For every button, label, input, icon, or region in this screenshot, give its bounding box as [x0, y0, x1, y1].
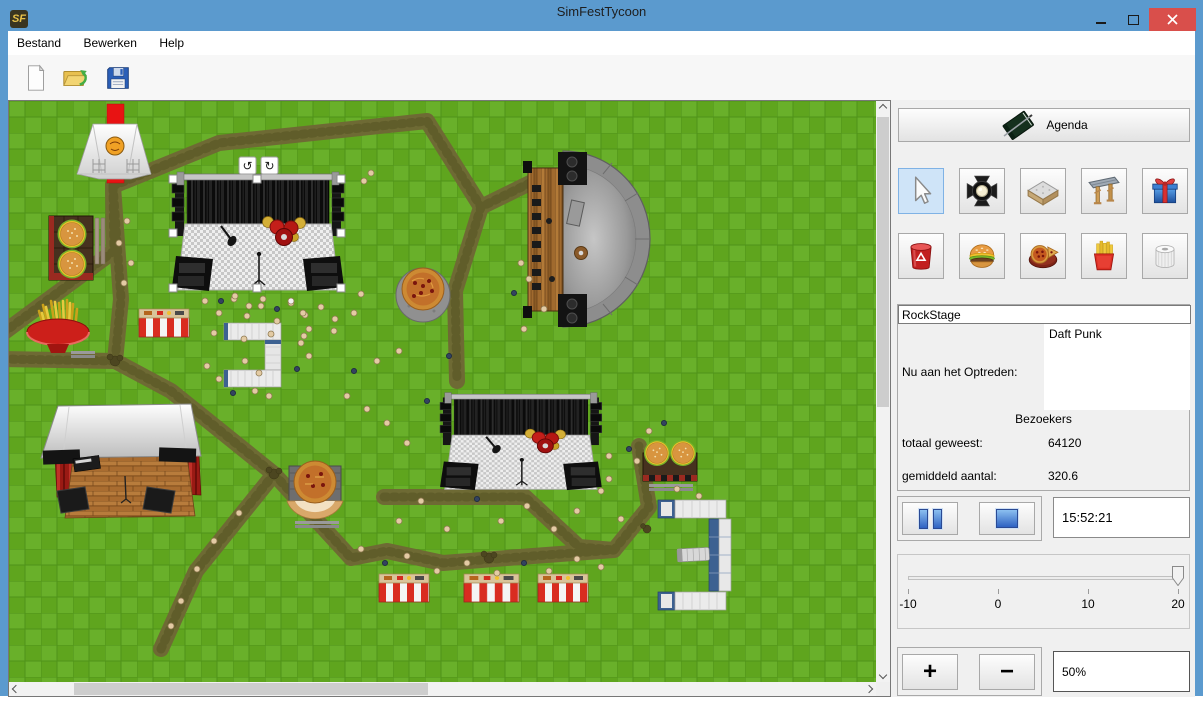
slider-tick-10: 10 [1068, 597, 1108, 611]
chevron-up-icon [879, 104, 887, 112]
maximize-button[interactable] [1117, 8, 1149, 31]
menu-help[interactable]: Help [150, 31, 193, 55]
toolbar [8, 55, 1195, 101]
chevron-down-icon [879, 671, 887, 679]
map-object-pizza-table[interactable] [396, 268, 450, 322]
map-object-striped-stand[interactable] [139, 309, 189, 337]
stage-name-input[interactable] [898, 305, 1191, 324]
toilet-roll-icon [1148, 239, 1182, 273]
gift-icon [1148, 174, 1182, 208]
visitors-average-label: gemiddeld aantal: [902, 469, 997, 483]
tool-spotlight-button[interactable] [959, 168, 1005, 214]
zoom-group: + − [897, 647, 1042, 696]
entrance-gate-icon [1087, 174, 1121, 208]
map-object-burger-stand-1[interactable] [49, 216, 93, 280]
scroll-up-button[interactable] [876, 101, 890, 115]
control-panel: Agenda [897, 100, 1191, 697]
agenda-book-icon [1000, 110, 1036, 140]
slider-tick-20: 20 [1158, 597, 1198, 611]
stop-button[interactable] [979, 502, 1035, 535]
clock-field[interactable]: 15:52:21 [1053, 497, 1190, 538]
open-folder-icon [60, 63, 92, 93]
slider-track[interactable] [908, 576, 1178, 580]
menu-bewerken[interactable]: Bewerken [75, 31, 146, 55]
visitors-average-value: 320.6 [1048, 469, 1078, 483]
tool-pizza-button[interactable] [1020, 233, 1066, 279]
map-object-silver-unit[interactable] [677, 547, 710, 562]
horizontal-scroll-thumb[interactable] [74, 683, 428, 695]
rotate-left-icon: ↺ [242, 159, 252, 173]
application-window: 18 public static void main(String[] args… [0, 0, 1203, 704]
menu-bestand[interactable]: Bestand [8, 31, 70, 55]
visitors-header: Bezoekers [898, 412, 1189, 426]
horizontal-scrollbar[interactable] [9, 682, 876, 696]
minimize-icon [1096, 22, 1106, 24]
map-object-barrier-stand-2[interactable] [464, 574, 519, 602]
slider-tick-0: 0 [978, 597, 1018, 611]
tool-select-button[interactable] [898, 168, 944, 214]
slider-tick-minus10: -10 [888, 597, 928, 611]
zoom-in-button[interactable]: + [902, 654, 958, 690]
zoom-level-value: 50% [1062, 665, 1086, 679]
new-file-button[interactable] [18, 60, 54, 96]
visitors-total-value: 64120 [1048, 436, 1081, 450]
vertical-scrollbar[interactable] [876, 101, 890, 682]
minimize-button[interactable] [1085, 8, 1117, 31]
now-performing-value: Daft Punk [1044, 324, 1190, 344]
tool-stage-platform-button[interactable] [1020, 168, 1066, 214]
open-file-button[interactable] [58, 60, 94, 96]
close-button[interactable] [1149, 8, 1196, 31]
stage-platform-icon [1026, 174, 1060, 208]
map-widget: ↺ ↻ [8, 100, 891, 697]
chevron-left-icon [12, 685, 20, 693]
tool-fries-button[interactable] [1081, 233, 1127, 279]
save-floppy-icon [103, 63, 133, 93]
trash-bin-icon [904, 239, 938, 273]
new-file-icon [21, 63, 51, 93]
rotate-right-button[interactable]: ↻ [261, 157, 278, 174]
scroll-right-button[interactable] [862, 682, 876, 696]
zoom-level-field[interactable]: 50% [1053, 651, 1190, 692]
zoom-out-button[interactable]: − [979, 654, 1035, 690]
tool-gift-button[interactable] [1142, 168, 1188, 214]
map-object-rock-stage-2[interactable] [440, 393, 602, 491]
stage-info-group: Daft Punk Nu aan het Optreden: Bezoekers… [897, 304, 1190, 491]
pause-icon [919, 509, 928, 529]
map-object-rock-stage-1[interactable] [172, 172, 344, 291]
scrollbar-corner [876, 682, 890, 696]
tool-toilet-roll-button[interactable] [1142, 233, 1188, 279]
pause-button[interactable] [902, 502, 958, 535]
agenda-label: Agenda [1046, 118, 1087, 132]
rotate-left-button[interactable]: ↺ [239, 157, 256, 174]
visitors-total-label: totaal geweest: [902, 436, 983, 450]
burger-icon [965, 239, 999, 273]
close-icon [1167, 14, 1178, 25]
stop-icon [996, 509, 1018, 528]
cursor-icon [904, 174, 938, 208]
menu-bar: Bestand Bewerken Help [8, 31, 1195, 56]
spotlight-icon [965, 174, 999, 208]
playback-group [897, 496, 1042, 541]
slider-thumb[interactable] [1172, 566, 1184, 586]
scroll-left-button[interactable] [9, 682, 23, 696]
pizza-icon [1026, 239, 1060, 273]
map-object-covered-stage[interactable] [41, 404, 201, 518]
grass-field[interactable] [9, 101, 876, 682]
save-file-button[interactable] [100, 60, 136, 96]
map-object-barrier-stand-3[interactable] [538, 574, 588, 602]
clock-value: 15:52:21 [1062, 510, 1113, 525]
scroll-down-button[interactable] [876, 668, 890, 682]
tool-burger-button[interactable] [959, 233, 1005, 279]
chevron-right-icon [865, 685, 873, 693]
agenda-button[interactable]: Agenda [898, 108, 1190, 142]
festival-map-canvas[interactable]: ↺ ↻ [9, 101, 876, 682]
window-title: SimFestTycoon [0, 0, 1203, 23]
map-object-barrier-stand-1[interactable] [379, 574, 429, 602]
tool-entrance-gate-button[interactable] [1081, 168, 1127, 214]
app-icon: SF [10, 10, 28, 28]
speed-slider-group: -10 0 10 20 [897, 554, 1190, 629]
now-performing-box: Daft Punk [1044, 324, 1190, 410]
now-performing-label: Nu aan het Optreden: [902, 365, 1017, 379]
tool-trash-bin-button[interactable] [898, 233, 944, 279]
maximize-icon [1128, 15, 1139, 25]
vertical-scroll-thumb[interactable] [877, 117, 889, 407]
titlebar: SimFestTycoon SF [0, 0, 1203, 23]
fries-icon [1087, 239, 1121, 273]
rotate-right-icon: ↻ [264, 159, 274, 173]
